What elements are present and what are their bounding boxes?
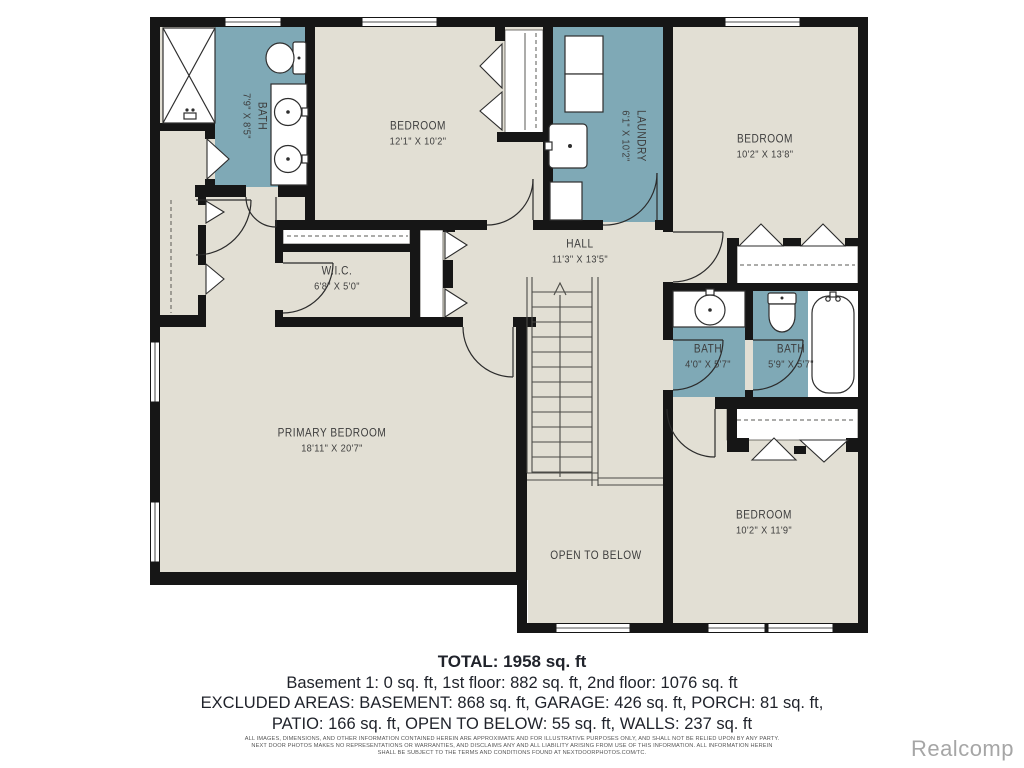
disclaimer-line: ALL IMAGES, DIMENSIONS, AND OTHER INFORM… bbox=[0, 736, 1024, 743]
vanity-double-sink-symbol bbox=[271, 84, 308, 185]
vanity-sink-symbol-bath2 bbox=[673, 289, 745, 327]
disclaimer: ALL IMAGES, DIMENSIONS, AND OTHER INFORM… bbox=[0, 736, 1024, 758]
excluded-areas-line-2: PATIO: 166 sq. ft, OPEN TO BELOW: 55 sq.… bbox=[0, 714, 1024, 735]
total-area: TOTAL: 1958 sq. ft bbox=[0, 652, 1024, 673]
washer-dryer-symbol bbox=[565, 36, 603, 112]
disclaimer-line: SHALL BE SUBJECT TO THE TERMS AND CONDIT… bbox=[0, 750, 1024, 757]
toilet-symbol-bath1 bbox=[266, 42, 306, 74]
shower-symbol bbox=[163, 28, 215, 123]
laundry-sink-symbol bbox=[545, 124, 587, 168]
excluded-areas-line-1: EXCLUDED AREAS: BASEMENT: 868 sq. ft, GA… bbox=[0, 693, 1024, 714]
disclaimer-line: NEXT DOOR PHOTOS MAKES NO REPRESENTATION… bbox=[0, 743, 1024, 750]
floor-areas-line: Basement 1: 0 sq. ft, 1st floor: 882 sq.… bbox=[0, 673, 1024, 694]
realcomp-watermark: Realcomp bbox=[911, 736, 1014, 762]
bathtub-symbol bbox=[812, 292, 854, 393]
laundry-closet-box bbox=[550, 182, 582, 220]
toilet-symbol-bath3 bbox=[768, 293, 796, 332]
floor-plan-page: BATH 7'9" X 8'5" BEDROOM 12'1" X 10'2" L… bbox=[0, 0, 1024, 768]
area-summary: TOTAL: 1958 sq. ft Basement 1: 0 sq. ft,… bbox=[0, 652, 1024, 734]
